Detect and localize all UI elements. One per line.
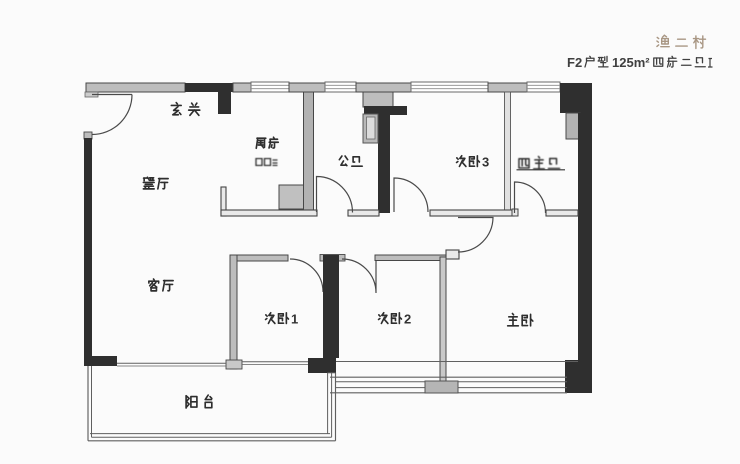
svg-text:1: 1 xyxy=(291,312,298,327)
svg-text:125m²: 125m² xyxy=(612,55,650,70)
svg-text:2: 2 xyxy=(404,312,411,327)
svg-text:F2: F2 xyxy=(567,55,582,70)
svg-text:3: 3 xyxy=(482,155,489,170)
